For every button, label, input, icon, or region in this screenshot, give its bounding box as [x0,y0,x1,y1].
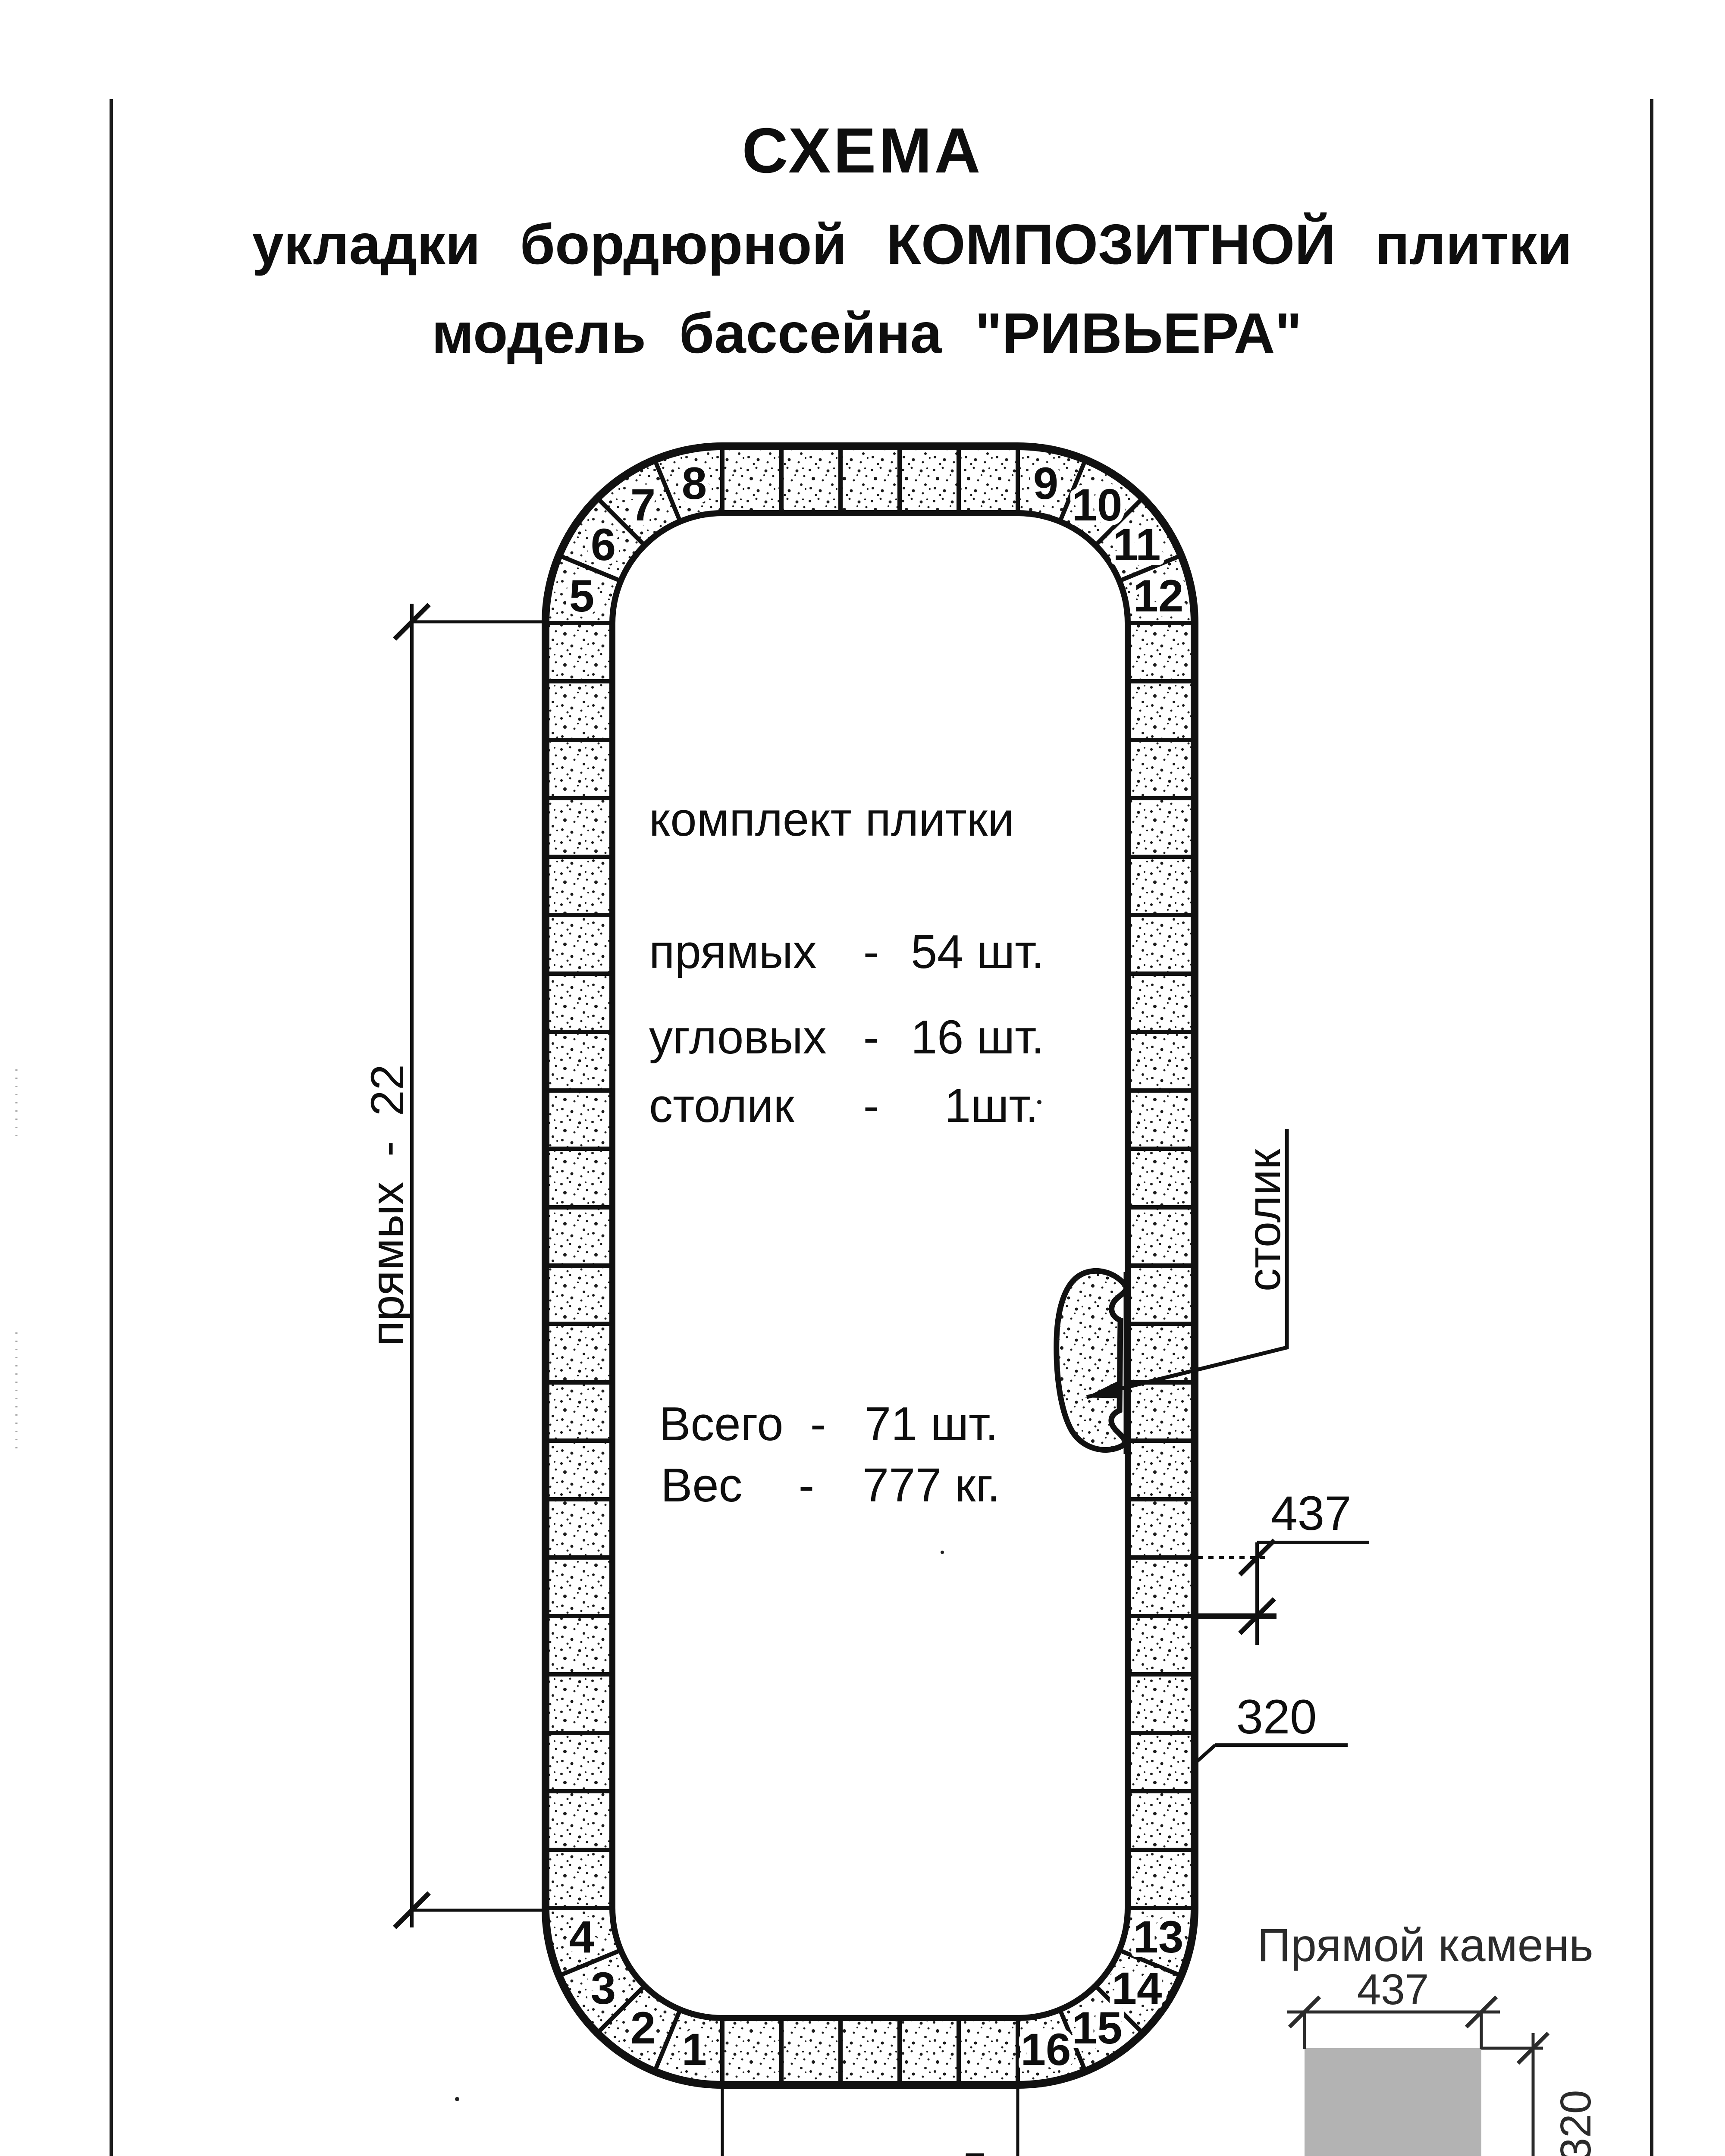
corner-tile-number: 4 [569,1912,594,1962]
kit-heading: комплект плитки [649,793,1014,846]
kit-row-value: 1шт. [944,1079,1038,1132]
corner-tile-number: 16 [1021,2024,1071,2075]
corner-tile-number: 2 [630,2003,655,2053]
kit-weight-dash: - [799,1459,815,1512]
title-line-2: укладки бордюрной КОМПОЗИТНОЙ плитки [252,212,1572,276]
pool-ring [544,445,1196,2087]
kit-row-dash: - [863,1011,879,1064]
title-line-1: СХЕМА [742,115,983,186]
kit-total-label: Всего [659,1398,783,1451]
corner-tile-numbers: 1 2 3 4 5 6 7 8 9 10 11 12 13 14 15 16 [569,458,1184,2075]
legend-title: Прямой камень [1257,1919,1593,1971]
ring-fill [546,446,1195,2085]
kit-summary: комплект плитки прямых - 54 шт. угловых … [649,793,1044,1512]
dimension-bottom-label: прямых - 5 [746,2143,988,2156]
kit-row-value: 16 шт. [911,1011,1044,1064]
kit-row-label: столик [649,1079,795,1132]
kit-total-dash: - [810,1398,826,1451]
corner-tile-number: 13 [1133,1912,1184,1962]
corner-tile-number: 1 [682,2024,707,2075]
legend-stone-swatch [1305,2048,1481,2156]
corner-tile-number: 12 [1133,571,1184,621]
kit-weight-value: 777 кг. [862,1459,1000,1512]
corner-tile-number: 9 [1033,458,1058,509]
pool-tiling-diagram: СХЕМА укладки бордюрной КОМПОЗИТНОЙ плит… [0,0,1725,2156]
dimension-tile-length: 437 [1198,1486,1369,1645]
corner-tile-number: 3 [591,1963,616,2014]
dimension-tile-width: 320 [1195,1690,1348,1764]
diagram-title: СХЕМА укладки бордюрной КОМПОЗИТНОЙ плит… [252,115,1572,365]
legend-height-label: 320 [1552,2090,1600,2156]
legend-straight-stone: Прямой камень 437 320 [1257,1919,1600,2156]
table-callout-label: столик [1238,1149,1290,1291]
table-shape [1057,1271,1126,1454]
kit-total-value: 71 шт. [865,1398,998,1451]
corner-tile-number: 8 [682,458,707,509]
dimension-437-label: 437 [1271,1486,1352,1540]
dimension-bottom: прямых - 5 [705,2088,1035,2156]
ring-outer-outline [546,446,1195,2085]
kit-weight-label: Вес [661,1459,743,1512]
corner-tile-number: 11 [1113,520,1161,570]
corner-tile-number: 7 [630,480,655,530]
dimension-left-label: прямых - 22 [361,1064,413,1346]
title-line-3: модель бассейна "РИВЬЕРА" [432,301,1302,365]
dimension-320-label: 320 [1236,1690,1317,1744]
kit-row-dash: - [863,1079,879,1132]
kit-row-label: угловых [649,1011,827,1064]
page-frame [111,99,1652,2156]
ring-inner-outline [612,513,1128,2018]
corner-tile-number: 6 [591,520,616,570]
ring-speckle [546,446,1195,2085]
kit-row-dash: - [863,925,879,978]
corner-tile-number: 15 [1072,2003,1123,2053]
dimension-left: прямых - 22 [361,604,547,1927]
legend-width-label: 437 [1357,1965,1429,2014]
corner-tile-number: 5 [569,571,594,621]
kit-row-label: прямых [649,925,817,978]
kit-row-value: 54 шт. [911,925,1044,978]
